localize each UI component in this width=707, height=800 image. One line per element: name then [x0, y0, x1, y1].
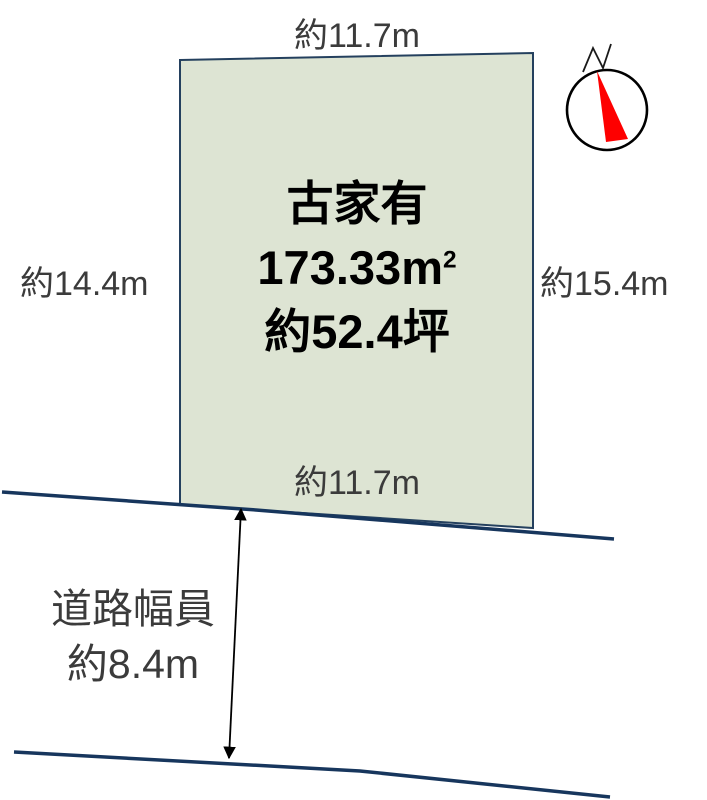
road-width-arrow — [229, 509, 241, 758]
road-width-label: 道路幅員 約8.4m — [38, 582, 228, 692]
land-plot-diagram: 約11.7m 約14.4m 約15.4m 約11.7m 古家有 173.33m2… — [0, 0, 707, 800]
area-unit-exponent: 2 — [443, 246, 457, 273]
road-edge-lower — [14, 752, 610, 797]
dimension-top: 約11.7m — [180, 8, 534, 57]
plot-info: 古家有 173.33m2 約52.4坪 — [180, 172, 534, 364]
area-value: 173.33 — [257, 241, 401, 294]
area-unit: m — [401, 241, 443, 294]
dimension-bottom: 約11.7m — [180, 455, 534, 504]
plot-area-tsubo: 約52.4坪 — [180, 300, 534, 364]
compass-north-icon — [583, 44, 611, 72]
dimension-left: 約14.4m — [20, 256, 149, 305]
road-width-label-line1: 道路幅員 — [38, 582, 228, 637]
plot-area-sqm: 173.33m2 — [180, 236, 534, 300]
dimension-right: 約15.4m — [540, 256, 669, 305]
road-width-label-line2: 約8.4m — [38, 637, 228, 692]
compass — [567, 44, 647, 150]
building-status: 古家有 — [180, 172, 534, 236]
